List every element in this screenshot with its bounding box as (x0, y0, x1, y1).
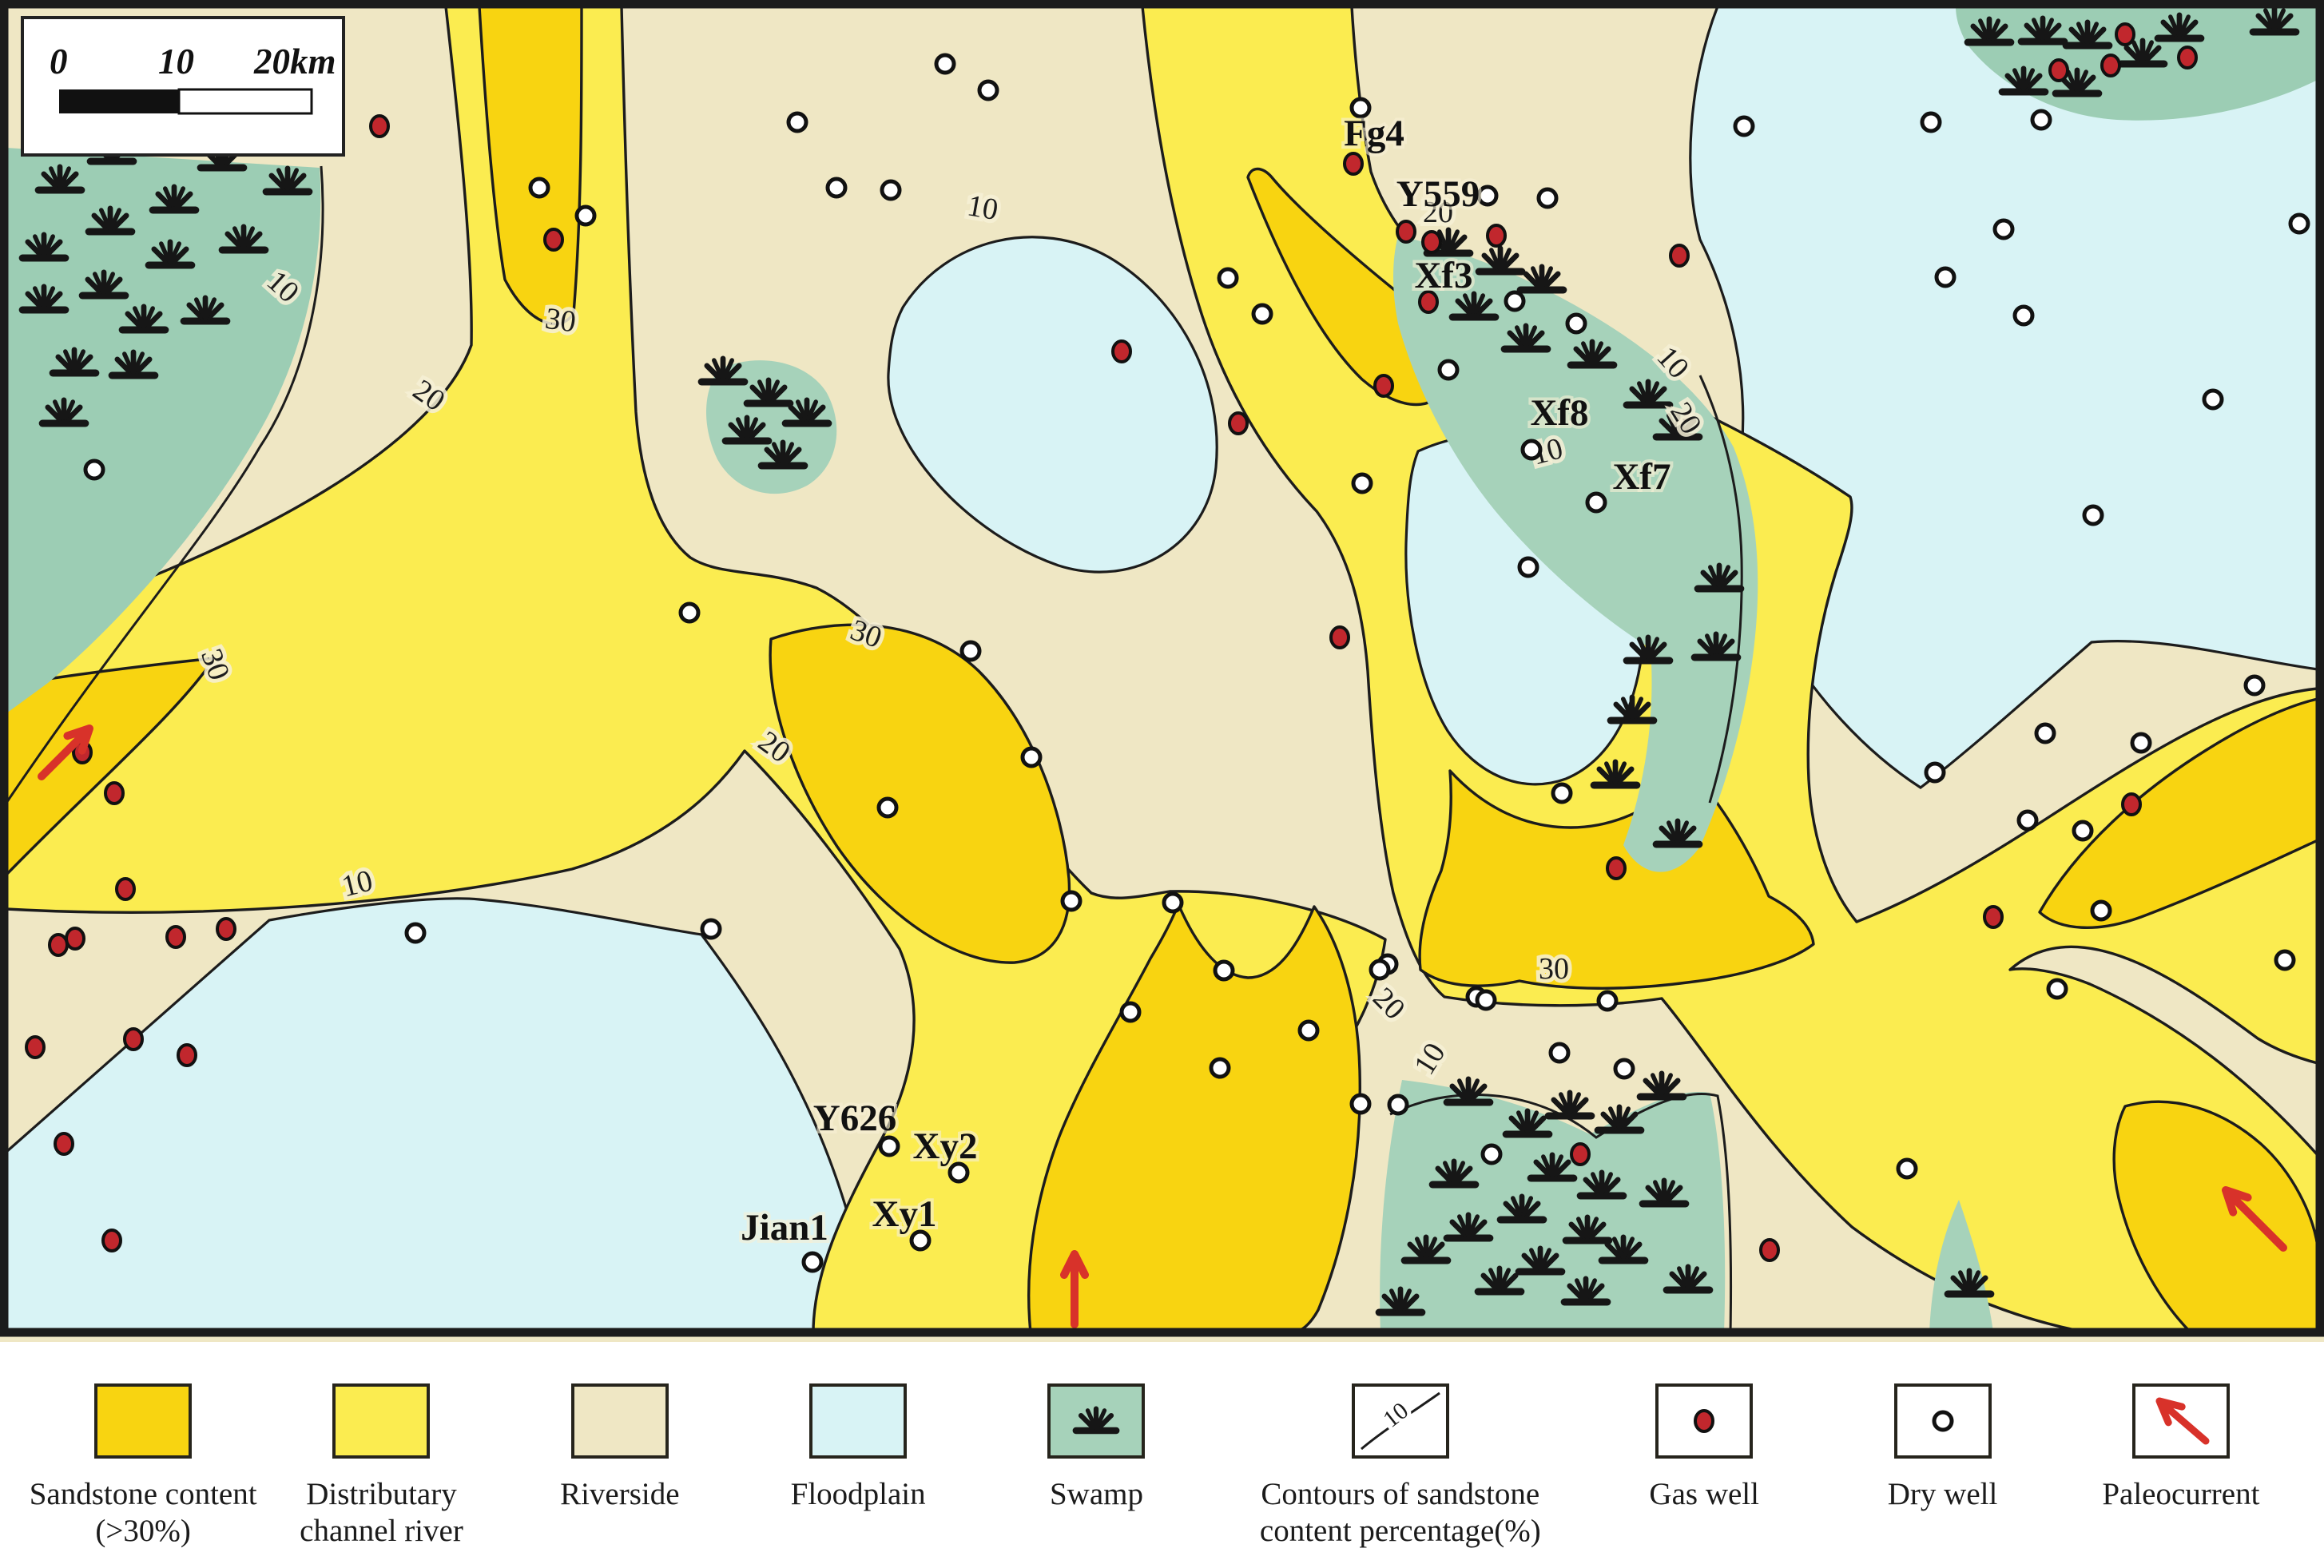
dry-well-marker (1352, 1095, 1369, 1113)
dry-well-marker (702, 920, 720, 938)
legend-label-sandstone: Sandstone content (>30%) (30, 1476, 257, 1550)
dry-well-marker (1934, 1412, 1952, 1430)
dry-well-marker (1164, 894, 1182, 911)
gas-well-marker (178, 1045, 196, 1066)
legend-label-floodplain: Floodplain (791, 1476, 926, 1513)
dry-well-marker (1300, 1022, 1317, 1039)
dry-well-marker (2276, 951, 2294, 969)
gas-well-marker (50, 935, 67, 955)
legend-item-distributary: Distributary channel river (262, 1342, 500, 1550)
contour-label: 30 (1539, 952, 1569, 986)
scale-tick-10: 10 (158, 42, 194, 81)
gas-well-marker (2102, 55, 2119, 76)
gas-well-marker (103, 1230, 121, 1251)
dry-well-marker (2015, 307, 2032, 324)
dry-well-marker (1615, 1060, 1633, 1078)
dry-well-marker (2132, 734, 2150, 752)
dry-well-marker (1523, 441, 1540, 458)
gas-well-marker (2179, 47, 2196, 68)
dry-well-marker (2290, 215, 2308, 232)
scale-tick-0: 0 (50, 42, 68, 81)
gas-well-marker (2050, 60, 2068, 81)
dry-well-marker (1551, 1044, 1568, 1062)
dry-well-marker (2084, 506, 2102, 524)
dry-well-marker (1023, 748, 1040, 766)
dry-well-marker (577, 207, 594, 224)
dry-well-marker (962, 642, 979, 660)
dry-well-marker (1553, 784, 1571, 802)
gas-well-marker (1113, 341, 1130, 362)
well-label-xf8: Xf8 (1530, 392, 1588, 434)
gas-well-marker (125, 1029, 142, 1050)
well-label-y626: Y626 (813, 1098, 896, 1139)
legend-item-contours: 10Contours of sandstone content percenta… (1216, 1342, 1585, 1550)
dry-well-marker (804, 1253, 821, 1271)
dry-well-marker (2092, 902, 2110, 919)
contour-label: 30 (543, 302, 578, 339)
dry-well-marker (1211, 1059, 1229, 1077)
scale-bar-black-segment (59, 89, 179, 113)
gas-well-marker (1345, 153, 1362, 174)
dry-well-marker (2048, 980, 2066, 998)
dry-well-marker (1063, 892, 1080, 910)
legend-item-floodplain: Floodplain (739, 1342, 977, 1513)
well-label-xy2: Xy2 (913, 1125, 978, 1167)
dry-well-marker (1898, 1160, 1916, 1177)
dry-well-marker (1599, 992, 1616, 1010)
facies-map-figure: 103020301010302020102010302010 Fg4Y559Xf… (0, 0, 2324, 1568)
dry-well-marker (2074, 822, 2092, 840)
dry-well-marker (2019, 812, 2036, 829)
gas-well-marker (1670, 245, 1688, 266)
dry-well-marker (1926, 764, 1944, 781)
gas-well-marker (66, 928, 84, 949)
legend-label-swamp: Swamp (1050, 1476, 1143, 1513)
legend-item-dry: Dry well (1823, 1342, 2061, 1513)
dry-well-marker (407, 924, 424, 942)
gas-well-marker (26, 1037, 44, 1058)
legend-swatch-riverside (571, 1383, 669, 1459)
legend-item-swamp: Swamp (977, 1342, 1215, 1513)
dry-well-marker (828, 179, 845, 196)
dry-well-marker (1506, 292, 1524, 310)
legend-swatch-contours: 10 (1352, 1383, 1449, 1459)
dry-well-marker (1922, 113, 1940, 131)
dry-well-marker (1353, 474, 1371, 492)
legend-label-distributary: Distributary channel river (300, 1476, 463, 1550)
gas-well-marker (1607, 858, 1625, 879)
legend-swatch-swamp (1047, 1383, 1145, 1459)
dry-well-marker (1477, 991, 1495, 1009)
dry-well-marker (1389, 1096, 1407, 1113)
dry-well-marker (1735, 117, 1753, 135)
gas-well-marker (545, 229, 562, 250)
dry-well-marker (936, 55, 954, 73)
legend-swatch-paleo (2132, 1383, 2230, 1459)
dry-well-marker (1440, 361, 1457, 379)
dry-well-marker (1219, 269, 1237, 287)
gas-well-marker (2116, 24, 2134, 45)
scale-bar: 0 10 20km (22, 18, 344, 155)
dry-well-marker (1567, 315, 1585, 332)
legend-label-dry: Dry well (1888, 1476, 1998, 1513)
legend-item-gas: Gas well (1585, 1342, 1823, 1513)
legend-item-riverside: Riverside (501, 1342, 739, 1513)
well-label-jian1: Jian1 (741, 1207, 828, 1248)
gas-well-marker (1488, 225, 1505, 246)
gas-well-marker (217, 919, 235, 939)
contour-label: 10 (965, 189, 1001, 227)
gas-well-marker (117, 879, 134, 899)
dry-well-marker (2246, 677, 2263, 694)
well-label-fg4: Fg4 (1344, 113, 1404, 154)
gas-well-marker (1423, 232, 1440, 252)
dry-well-marker (880, 1137, 898, 1155)
dry-well-marker (1483, 1145, 1500, 1163)
gas-well-marker (2123, 794, 2140, 815)
gas-well-marker (1230, 413, 1247, 434)
gas-well-marker (167, 927, 185, 947)
legend-label-contours: Contours of sandstone content percentage… (1260, 1476, 1541, 1550)
dry-well-marker (789, 113, 806, 131)
legend-label-paleo: Paleocurrent (2102, 1476, 2259, 1513)
well-label-xf3: Xf3 (1414, 255, 1472, 296)
dry-well-marker (1122, 1003, 1139, 1021)
dry-well-marker (1995, 220, 2012, 238)
legend-item-sandstone: Sandstone content (>30%) (24, 1342, 262, 1550)
dry-well-marker (1587, 494, 1605, 511)
legend-swatch-sandstone (94, 1383, 192, 1459)
well-label-xf7: Xf7 (1612, 456, 1670, 498)
gas-well-marker (1331, 627, 1349, 648)
dry-well-marker (1253, 305, 1271, 323)
dry-well-marker (1937, 268, 1954, 286)
map-legend: Sandstone content (>30%)Distributary cha… (0, 1342, 2324, 1568)
gas-well-marker (1375, 375, 1392, 396)
scale-tick-20km: 20km (253, 42, 336, 81)
gas-well-marker (1761, 1240, 1778, 1260)
dry-well-marker (1479, 187, 1496, 204)
dry-well-marker (1539, 189, 1556, 207)
legend-swatch-dry (1894, 1383, 1992, 1459)
gas-well-marker (1984, 907, 2002, 927)
dry-well-marker (681, 604, 698, 621)
scale-bar-white-segment (179, 89, 312, 113)
dry-well-marker (2032, 111, 2050, 129)
legend-swatch-gas (1655, 1383, 1753, 1459)
gas-well-marker (1571, 1144, 1589, 1165)
gas-well-marker (1397, 221, 1415, 242)
legend-item-paleo: Paleocurrent (2062, 1342, 2300, 1513)
legend-swatch-distributary (332, 1383, 430, 1459)
dry-well-marker (2036, 724, 2054, 742)
gas-well-marker (371, 116, 388, 137)
dry-well-marker (1215, 962, 1233, 979)
well-label-xy1: Xy1 (872, 1193, 937, 1235)
gas-well-marker (105, 783, 123, 804)
legend-label-gas: Gas well (1649, 1476, 1759, 1513)
dry-well-marker (1520, 558, 1537, 576)
dry-well-marker (2204, 391, 2222, 408)
gas-well-marker (55, 1133, 73, 1154)
dry-well-marker (979, 81, 997, 99)
dry-well-marker (85, 461, 103, 478)
dry-well-marker (530, 179, 548, 196)
dry-well-marker (879, 799, 896, 816)
legend-label-riverside: Riverside (560, 1476, 679, 1513)
well-label-y559: Y559 (1396, 173, 1480, 215)
legend-swatch-floodplain (809, 1383, 907, 1459)
dry-well-marker (882, 181, 900, 199)
map-canvas: 103020301010302020102010302010 Fg4Y559Xf… (0, 0, 2324, 1342)
dry-well-marker (1371, 961, 1388, 979)
gas-well-marker (1695, 1411, 1713, 1431)
